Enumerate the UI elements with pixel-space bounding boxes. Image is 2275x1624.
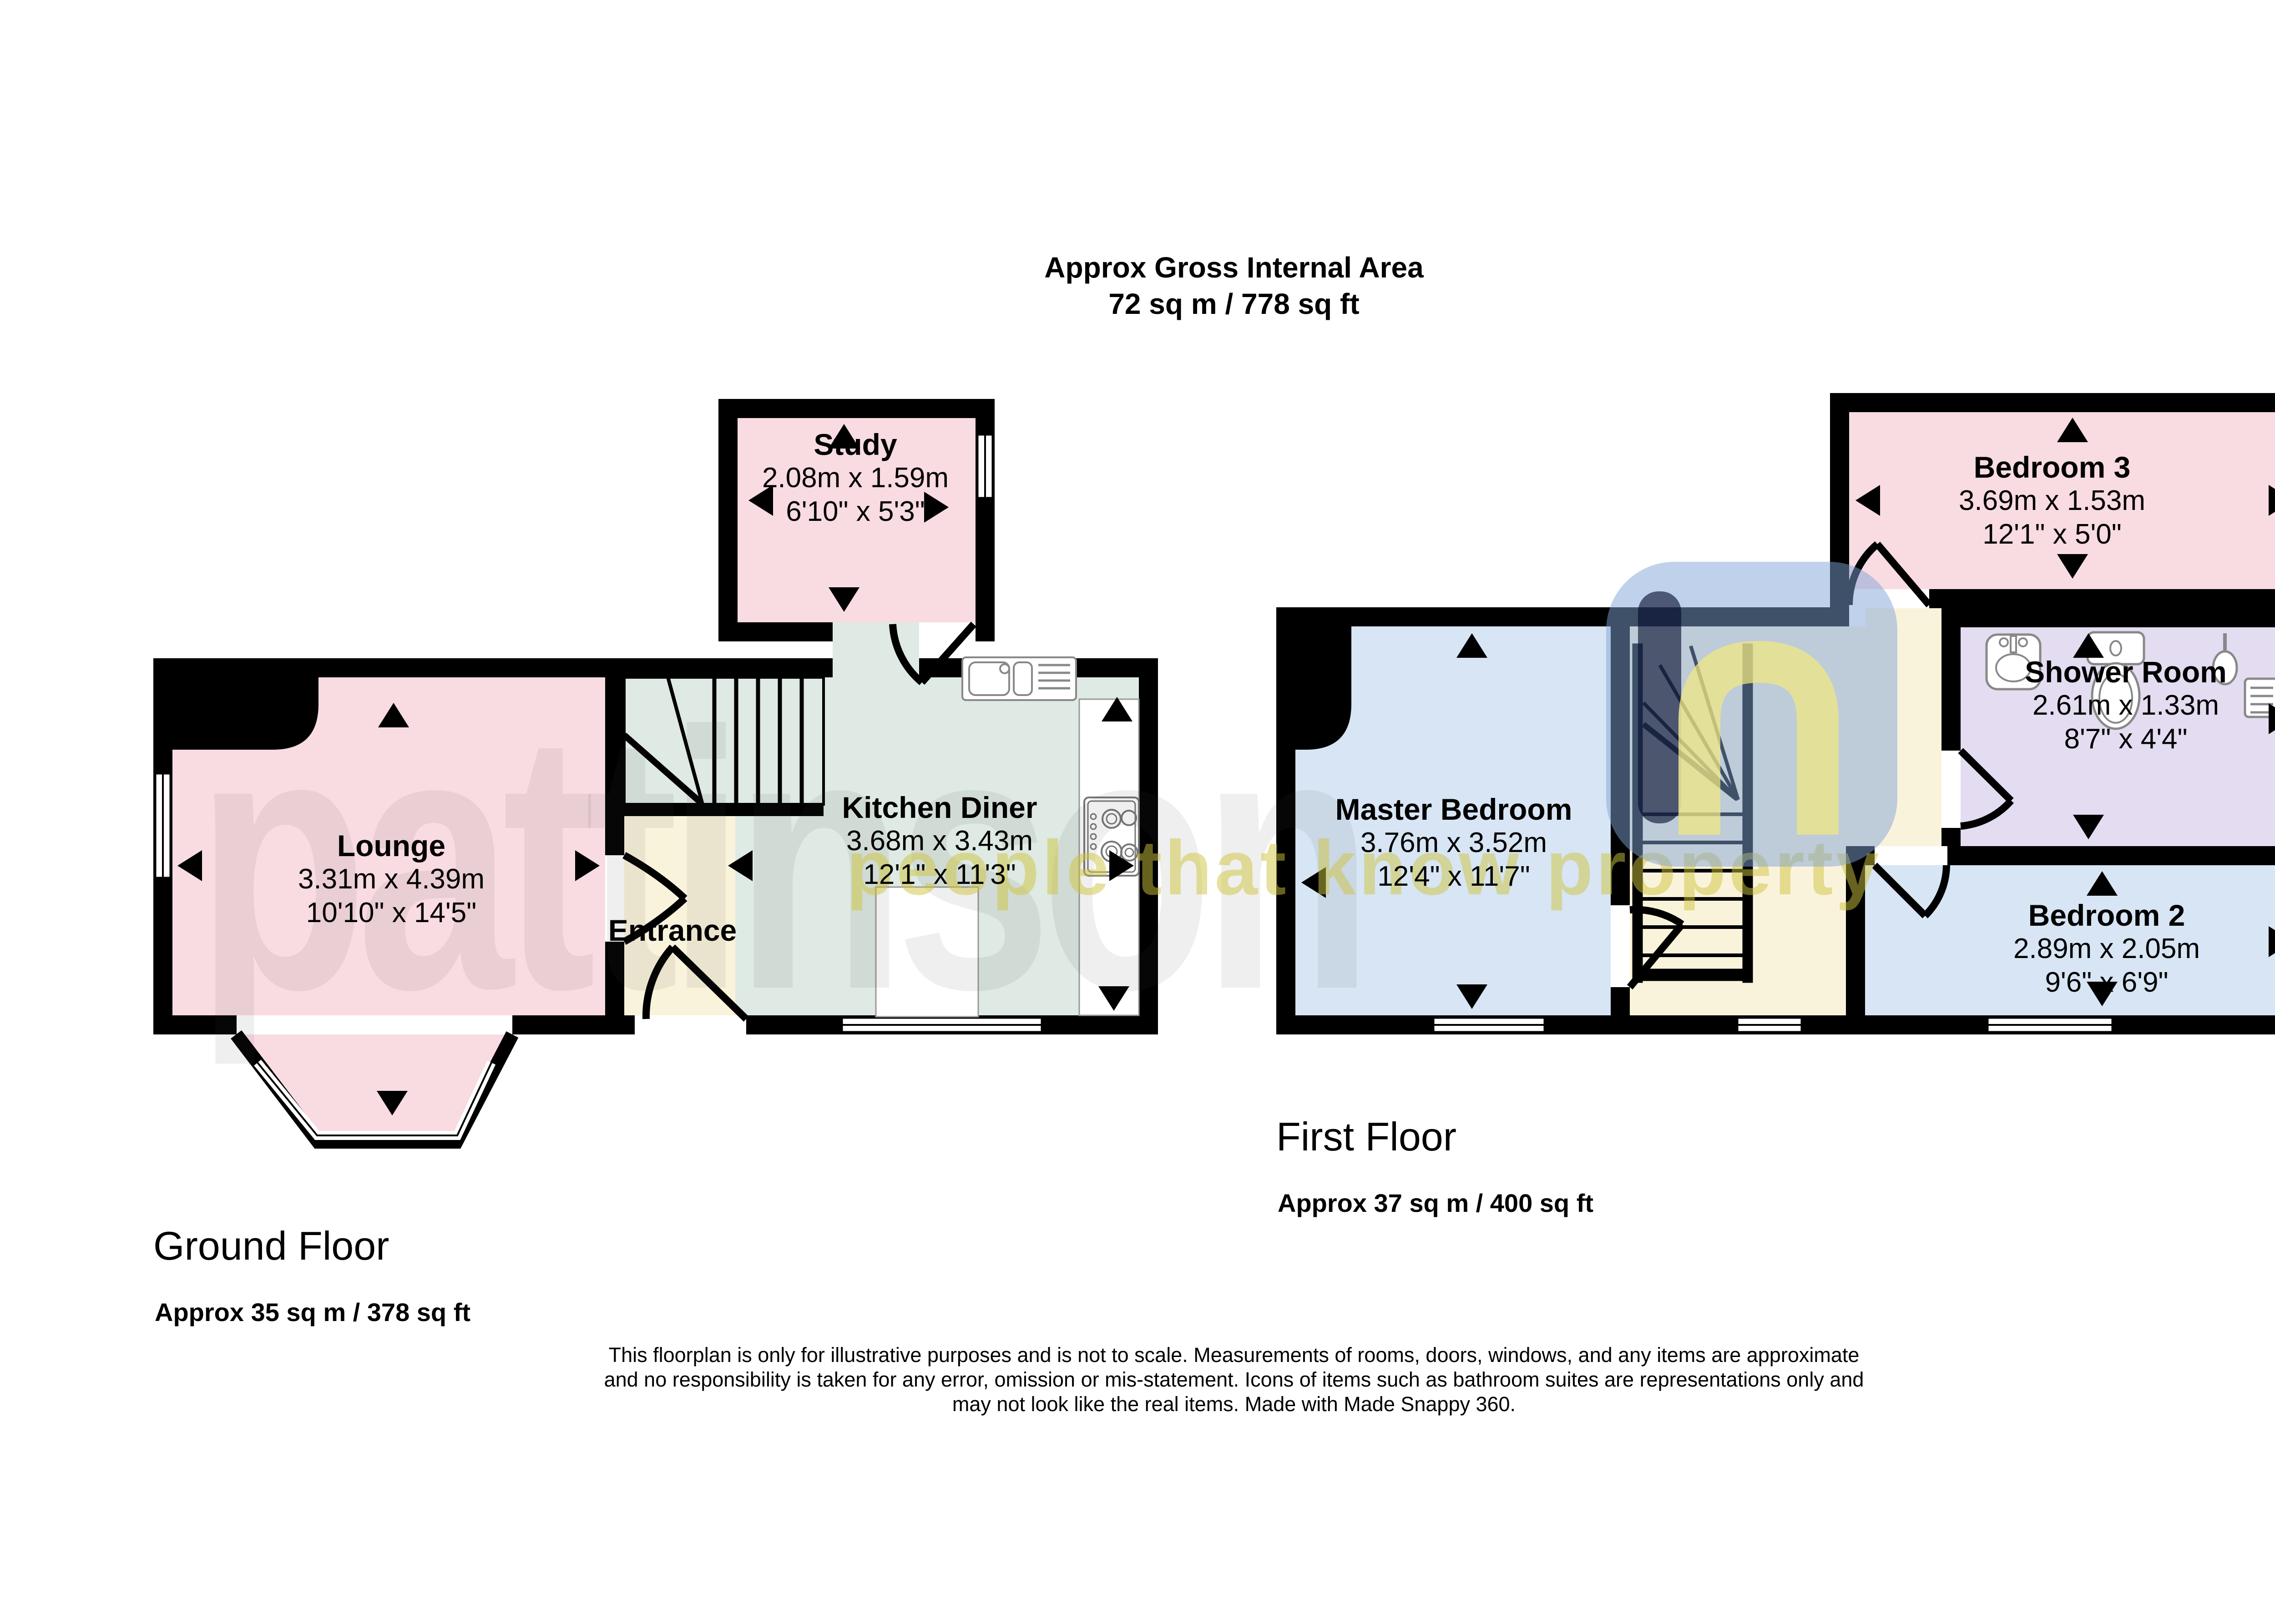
kitchen-diner-imperial: 12'1" x 11'3" bbox=[842, 858, 1037, 892]
gross-internal-area-value: 72 sq m / 778 sq ft bbox=[1044, 286, 1423, 322]
disclaimer-line2: and no responsibility is taken for any e… bbox=[256, 1367, 2212, 1392]
floorplan-page: pattinson people that know property Appr… bbox=[0, 0, 2275, 1624]
lounge-imperial: 10'10" x 14'5" bbox=[298, 896, 485, 930]
room-label-bedroom3: Bedroom 3 3.69m x 1.53m 12'1" x 5'0" bbox=[1959, 450, 2145, 551]
gross-internal-area-heading: Approx Gross Internal Area bbox=[1044, 249, 1423, 286]
lounge-corner-notch bbox=[172, 658, 318, 750]
master-bedroom-imperial: 12'4" x 11'7" bbox=[1335, 860, 1572, 893]
lounge-metric: 3.31m x 4.39m bbox=[298, 862, 485, 896]
master-bedroom-metric: 3.76m x 3.52m bbox=[1335, 826, 1572, 860]
room-label-kitchen-diner: Kitchen Diner 3.68m x 3.43m 12'1" x 11'3… bbox=[842, 791, 1037, 892]
landing-window bbox=[1737, 1018, 1802, 1032]
disclaimer-line1: This floorplan is only for illustrative … bbox=[256, 1343, 2212, 1367]
sink-icon bbox=[962, 657, 1076, 700]
room-label-shower-room: Shower Room 2.61m x 1.33m 8'7" x 4'4" bbox=[2025, 655, 2227, 756]
room-label-entrance: Entrance bbox=[608, 913, 737, 947]
ground-floor-area: Approx 35 sq m / 378 sq ft bbox=[155, 1297, 470, 1327]
disclaimer: This floorplan is only for illustrative … bbox=[256, 1343, 2212, 1417]
ground-floor-caption: Ground Floor bbox=[153, 1223, 389, 1269]
room-label-study: Study 2.08m x 1.59m 6'10" x 5'3" bbox=[762, 428, 949, 529]
room-label-master-bedroom: Master Bedroom 3.76m x 3.52m 12'4" x 11'… bbox=[1335, 792, 1572, 893]
page-title: Approx Gross Internal Area 72 sq m / 778… bbox=[1044, 249, 1423, 322]
landing-corridor bbox=[1865, 608, 1941, 846]
first-floor-caption: First Floor bbox=[1276, 1114, 1456, 1160]
study-window bbox=[977, 434, 993, 498]
kitchen-island bbox=[876, 887, 978, 1017]
study-imperial: 6'10" x 5'3" bbox=[762, 495, 949, 529]
bedroom3-metric: 3.69m x 1.53m bbox=[1959, 484, 2145, 518]
master-corner-notch bbox=[1276, 607, 1351, 750]
master-bedroom-window bbox=[1433, 1018, 1545, 1032]
shower-room-imperial: 8'7" x 4'4" bbox=[2025, 722, 2227, 756]
kitchen-diner-name: Kitchen Diner bbox=[842, 791, 1037, 824]
bedroom2-imperial: 9'6" x 6'9" bbox=[2013, 966, 2200, 999]
lounge-name: Lounge bbox=[298, 829, 485, 862]
study-metric: 2.08m x 1.59m bbox=[762, 461, 949, 495]
disclaimer-line3: may not look like the real items. Made w… bbox=[256, 1392, 2212, 1417]
bedroom3-name: Bedroom 3 bbox=[1959, 450, 2145, 484]
shower-room-name: Shower Room bbox=[2025, 655, 2227, 689]
first-floor-area: Approx 37 sq m / 400 sq ft bbox=[1278, 1188, 1593, 1218]
shower-room-metric: 2.61m x 1.33m bbox=[2025, 689, 2227, 722]
room-label-bedroom2: Bedroom 2 2.89m x 2.05m 9'6" x 6'9" bbox=[2013, 898, 2200, 999]
entrance-name: Entrance bbox=[608, 913, 737, 947]
ground-floor-plan bbox=[153, 399, 1158, 1142]
master-bedroom-name: Master Bedroom bbox=[1335, 792, 1572, 826]
study-name: Study bbox=[762, 428, 949, 461]
bedroom2-name: Bedroom 2 bbox=[2013, 898, 2200, 932]
bedroom2-window bbox=[1987, 1018, 2113, 1032]
bedroom2-metric: 2.89m x 2.05m bbox=[2013, 932, 2200, 966]
kitchen-diner-metric: 3.68m x 3.43m bbox=[842, 824, 1037, 858]
lounge-window bbox=[155, 773, 171, 878]
room-label-lounge: Lounge 3.31m x 4.39m 10'10" x 14'5" bbox=[298, 829, 485, 930]
bedroom3-imperial: 12'1" x 5'0" bbox=[1959, 518, 2145, 551]
kitchen-window bbox=[842, 1018, 1042, 1032]
